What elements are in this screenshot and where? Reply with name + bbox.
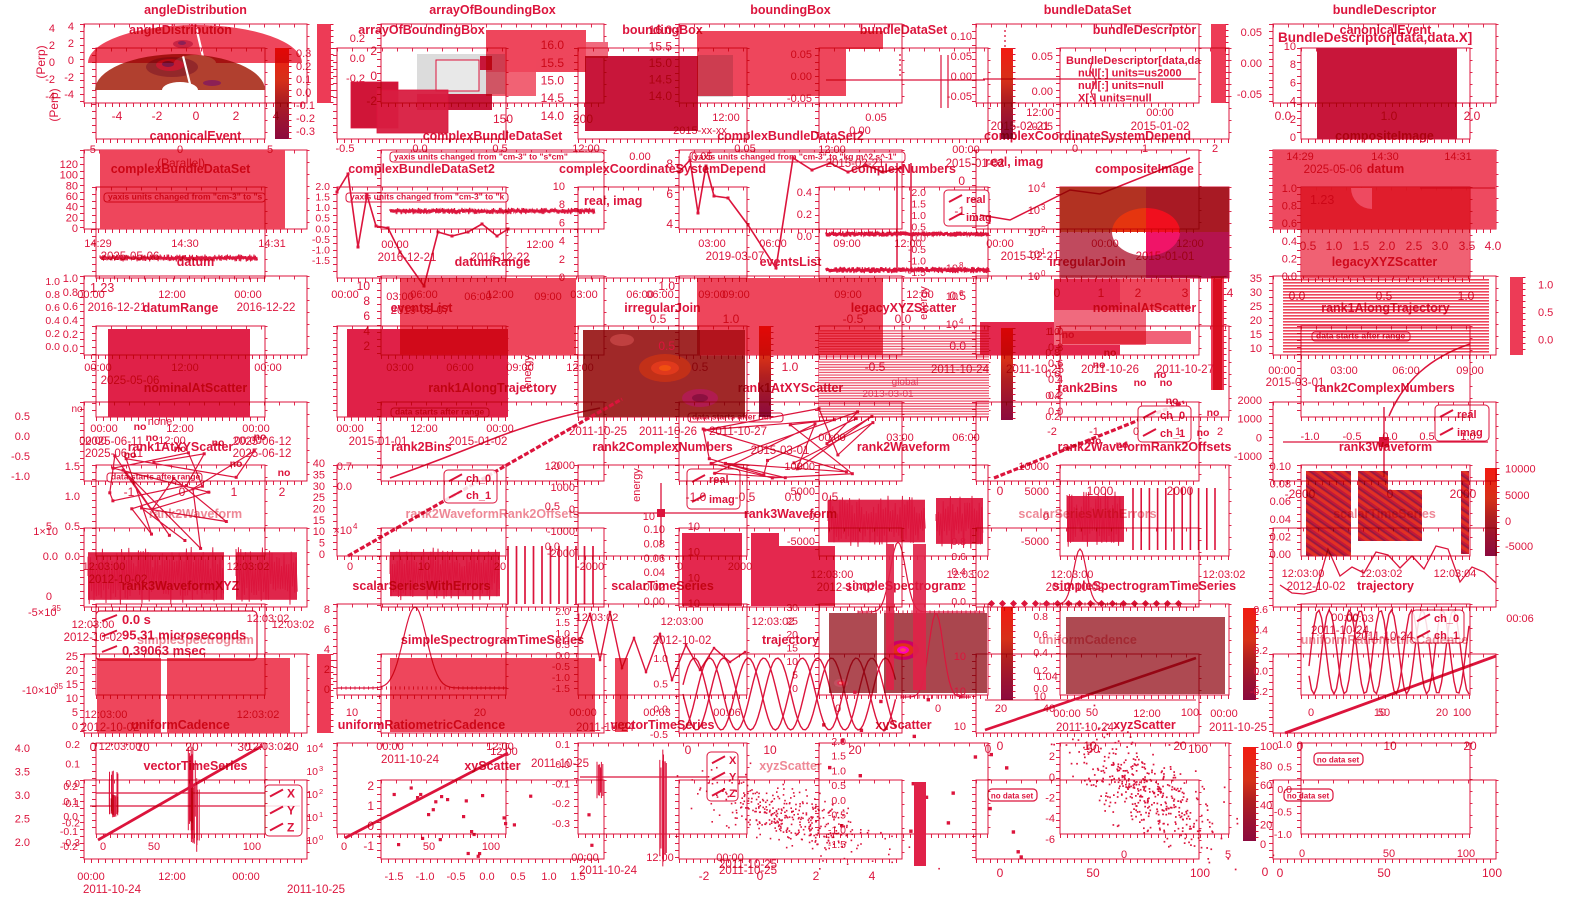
svg-text:1.0: 1.0 bbox=[65, 491, 80, 503]
svg-text:50: 50 bbox=[1383, 848, 1395, 860]
svg-text:12:03:02: 12:03:02 bbox=[752, 616, 795, 628]
svg-text:-10×10: -10×10 bbox=[22, 685, 57, 697]
svg-text:rank2ComplexNumbers: rank2ComplexNumbers bbox=[1314, 381, 1454, 395]
svg-text:no data set: no data set bbox=[1317, 756, 1360, 765]
svg-text:ch_1: ch_1 bbox=[1160, 428, 1185, 440]
svg-text:0.0: 0.0 bbox=[831, 795, 846, 807]
svg-text:real, imag: real, imag bbox=[584, 194, 642, 208]
svg-text:0: 0 bbox=[68, 55, 74, 67]
svg-text:2011-10-25: 2011-10-25 bbox=[287, 884, 345, 896]
svg-text:0.0: 0.0 bbox=[1253, 666, 1268, 678]
svg-text:100: 100 bbox=[1190, 866, 1210, 880]
svg-text:0.5: 0.5 bbox=[1277, 762, 1292, 774]
svg-text:-0.2: -0.2 bbox=[552, 798, 570, 810]
svg-text:0.5: 0.5 bbox=[65, 521, 80, 533]
svg-text:2011-10-27: 2011-10-27 bbox=[1156, 364, 1214, 376]
svg-text:-2: -2 bbox=[152, 109, 163, 123]
svg-text:-1.0: -1.0 bbox=[1274, 829, 1292, 841]
svg-text:0: 0 bbox=[179, 485, 186, 499]
svg-text:2011-10-24: 2011-10-24 bbox=[931, 364, 990, 376]
svg-text:12:00: 12:00 bbox=[166, 423, 194, 435]
svg-text:complexCoordinateSystemDepend: complexCoordinateSystemDepend bbox=[559, 162, 766, 176]
svg-text:1.5: 1.5 bbox=[65, 461, 80, 473]
svg-text:09:00: 09:00 bbox=[833, 238, 861, 250]
svg-text:30: 30 bbox=[237, 740, 251, 754]
svg-text:2025-05-06: 2025-05-06 bbox=[101, 251, 160, 263]
svg-text:2: 2 bbox=[49, 40, 55, 52]
svg-text:bundleDataSet: bundleDataSet bbox=[1044, 3, 1132, 17]
svg-text:compositeImage: compositeImage bbox=[1095, 162, 1194, 176]
svg-text:legacyXYZScatter: legacyXYZScatter bbox=[1332, 255, 1438, 269]
svg-text:0.0: 0.0 bbox=[63, 811, 78, 823]
svg-text:0: 0 bbox=[347, 561, 353, 573]
svg-text:(Perp): (Perp) bbox=[47, 88, 61, 121]
svg-text:×10: ×10 bbox=[333, 525, 352, 537]
svg-text:0.0: 0.0 bbox=[1033, 683, 1048, 695]
svg-text:00:00: 00:00 bbox=[336, 423, 364, 435]
svg-text:uniformCadence: uniformCadence bbox=[1038, 633, 1137, 647]
svg-text:-1.0: -1.0 bbox=[11, 471, 30, 483]
svg-text:2: 2 bbox=[1217, 426, 1223, 438]
svg-text:vectorTimeSeries: vectorTimeSeries bbox=[144, 759, 248, 773]
svg-text:0.0: 0.0 bbox=[1275, 109, 1292, 123]
svg-text:12:00: 12:00 bbox=[171, 362, 199, 374]
svg-text:1.5: 1.5 bbox=[1353, 239, 1370, 253]
svg-text:2011-10-24: 2011-10-24 bbox=[579, 865, 638, 877]
svg-text:2: 2 bbox=[1049, 751, 1055, 763]
svg-text:12:00: 12:00 bbox=[712, 112, 740, 124]
svg-text:rank2Bins: rank2Bins bbox=[1057, 381, 1117, 395]
svg-text:-0.3: -0.3 bbox=[552, 818, 570, 830]
svg-text:6: 6 bbox=[363, 309, 370, 323]
svg-text:-0.2: -0.2 bbox=[296, 113, 315, 125]
svg-text:0.5: 0.5 bbox=[911, 221, 926, 233]
svg-text:20: 20 bbox=[1250, 315, 1262, 327]
svg-text:4.0: 4.0 bbox=[1485, 239, 1502, 253]
svg-text:2: 2 bbox=[813, 869, 820, 883]
svg-text:-2000: -2000 bbox=[576, 561, 604, 573]
svg-text:25: 25 bbox=[66, 651, 78, 663]
svg-text:0.0: 0.0 bbox=[479, 871, 494, 883]
svg-text:X: X bbox=[287, 787, 295, 801]
svg-text:20: 20 bbox=[1463, 739, 1477, 753]
svg-text:6: 6 bbox=[1290, 77, 1296, 89]
svg-text:-1: -1 bbox=[954, 204, 965, 218]
svg-text:0.0: 0.0 bbox=[895, 312, 912, 326]
svg-text:20: 20 bbox=[848, 743, 862, 757]
svg-text:0.5: 0.5 bbox=[510, 871, 525, 883]
svg-text:compositeImage: compositeImage bbox=[1335, 129, 1434, 143]
svg-text:1000: 1000 bbox=[1238, 414, 1262, 426]
svg-text:0.0: 0.0 bbox=[951, 596, 966, 608]
svg-text:-0.1: -0.1 bbox=[296, 100, 315, 112]
svg-text:00:00: 00:00 bbox=[1210, 708, 1238, 720]
svg-text:-0.2: -0.2 bbox=[60, 841, 78, 853]
svg-text:2013-03-01: 2013-03-01 bbox=[862, 389, 914, 400]
svg-text:10: 10 bbox=[357, 279, 371, 293]
svg-text:2019-03-07: 2019-03-07 bbox=[706, 251, 765, 263]
svg-text:16.0: 16.0 bbox=[649, 23, 673, 37]
svg-text:2.5: 2.5 bbox=[15, 814, 30, 826]
svg-text:15: 15 bbox=[1250, 329, 1262, 341]
svg-text:0: 0 bbox=[985, 742, 992, 756]
svg-text:1.0: 1.0 bbox=[63, 273, 78, 285]
svg-text:0: 0 bbox=[757, 869, 764, 883]
svg-text:12:03:00: 12:03:00 bbox=[72, 619, 115, 631]
svg-text:8: 8 bbox=[1290, 59, 1296, 71]
svg-text:5: 5 bbox=[1225, 849, 1231, 861]
svg-text:50: 50 bbox=[1086, 707, 1098, 719]
svg-text:data starts after range: data starts after range bbox=[395, 407, 485, 417]
svg-text:-0.1: -0.1 bbox=[60, 826, 78, 838]
svg-text:scalarSeriesWithErrors: scalarSeriesWithErrors bbox=[1018, 507, 1156, 521]
svg-text:0.0: 0.0 bbox=[296, 87, 311, 99]
svg-text:20: 20 bbox=[66, 665, 78, 677]
svg-text:12:00: 12:00 bbox=[646, 852, 674, 864]
svg-text:14:31: 14:31 bbox=[258, 238, 286, 250]
svg-text:0.04: 0.04 bbox=[1270, 514, 1291, 526]
svg-text:imag: imag bbox=[709, 494, 735, 506]
svg-text:12:03:00: 12:03:00 bbox=[1282, 568, 1325, 580]
svg-text:15.0: 15.0 bbox=[649, 56, 673, 70]
svg-text:-1.5: -1.5 bbox=[828, 839, 846, 851]
svg-text:4: 4 bbox=[353, 522, 358, 531]
svg-text:10: 10 bbox=[1383, 739, 1397, 753]
svg-text:(Perp): (Perp) bbox=[34, 45, 48, 78]
svg-text:50: 50 bbox=[148, 841, 160, 853]
svg-text:0.02: 0.02 bbox=[644, 582, 665, 594]
svg-text:0.5: 0.5 bbox=[1300, 239, 1317, 253]
svg-text:trajectory: trajectory bbox=[1357, 579, 1414, 593]
svg-text:30: 30 bbox=[313, 481, 325, 493]
svg-text:0.5: 0.5 bbox=[1538, 307, 1553, 319]
svg-text:8: 8 bbox=[363, 294, 370, 308]
svg-text:rank2WaveformRank2Offsets: rank2WaveformRank2Offsets bbox=[406, 507, 580, 521]
svg-text:03:00: 03:00 bbox=[1330, 365, 1358, 377]
svg-text:150: 150 bbox=[493, 112, 513, 126]
svg-text:12:03:00: 12:03:00 bbox=[99, 741, 142, 753]
svg-text:2000: 2000 bbox=[1167, 484, 1194, 498]
svg-text:-0.5: -0.5 bbox=[1343, 431, 1362, 443]
svg-text:2: 2 bbox=[68, 38, 74, 50]
svg-text:trajectory: trajectory bbox=[762, 633, 819, 647]
svg-text:06:00: 06:00 bbox=[759, 238, 787, 250]
svg-text:4: 4 bbox=[68, 21, 74, 33]
svg-text:03:00: 03:00 bbox=[886, 432, 914, 444]
svg-text:0: 0 bbox=[1041, 269, 1046, 278]
svg-text:1.0: 1.0 bbox=[1381, 109, 1398, 123]
svg-text:10: 10 bbox=[763, 743, 777, 757]
svg-text:06:00: 06:00 bbox=[1392, 365, 1420, 377]
svg-text:50: 50 bbox=[1377, 866, 1391, 880]
svg-text:20: 20 bbox=[995, 703, 1007, 715]
svg-text:global: global bbox=[892, 377, 919, 388]
svg-text:0.5: 0.5 bbox=[831, 780, 846, 792]
svg-text:4: 4 bbox=[49, 23, 55, 35]
svg-text:canonicalEvent: canonicalEvent bbox=[150, 129, 243, 143]
svg-text:12:00: 12:00 bbox=[894, 238, 922, 250]
svg-text:0.4: 0.4 bbox=[1033, 647, 1048, 659]
svg-text:-1.5: -1.5 bbox=[312, 255, 330, 267]
svg-text:0.00: 0.00 bbox=[1241, 58, 1262, 70]
svg-text:100: 100 bbox=[1260, 741, 1278, 753]
svg-text:X: X bbox=[729, 755, 737, 767]
svg-text:0.0: 0.0 bbox=[785, 490, 802, 504]
svg-text:1.0: 1.0 bbox=[831, 765, 846, 777]
svg-text:-1.5: -1.5 bbox=[385, 871, 404, 883]
svg-text:scalarTimeSeries: scalarTimeSeries bbox=[1333, 507, 1436, 521]
svg-text:2.0: 2.0 bbox=[911, 187, 926, 199]
svg-text:Y: Y bbox=[287, 804, 295, 818]
svg-text:1.0: 1.0 bbox=[1326, 239, 1343, 253]
svg-text:10: 10 bbox=[1028, 183, 1040, 195]
svg-text:0: 0 bbox=[1256, 432, 1262, 444]
svg-text:-0.5: -0.5 bbox=[735, 490, 756, 504]
svg-text:1.0: 1.0 bbox=[653, 653, 668, 665]
svg-text:8: 8 bbox=[324, 604, 330, 616]
svg-text:12:03:00: 12:03:00 bbox=[661, 616, 704, 628]
svg-text:09:00: 09:00 bbox=[506, 362, 534, 374]
svg-text:8: 8 bbox=[666, 157, 673, 171]
svg-text:0: 0 bbox=[90, 740, 97, 754]
svg-text:0.2: 0.2 bbox=[350, 33, 365, 45]
svg-text:0.4: 0.4 bbox=[797, 187, 812, 199]
svg-text:0: 0 bbox=[341, 841, 347, 853]
svg-text:3.5: 3.5 bbox=[1459, 239, 1476, 253]
svg-text:00:00: 00:00 bbox=[234, 289, 262, 301]
svg-text:2: 2 bbox=[279, 485, 286, 499]
svg-text:10: 10 bbox=[346, 707, 358, 719]
svg-text:0: 0 bbox=[319, 549, 325, 561]
svg-text:00:00: 00:00 bbox=[1268, 365, 1296, 377]
svg-text:1.0: 1.0 bbox=[782, 360, 799, 374]
svg-text:10: 10 bbox=[313, 526, 325, 538]
svg-text:0.1: 0.1 bbox=[65, 759, 80, 771]
svg-text:1.0: 1.0 bbox=[45, 276, 60, 288]
svg-text:-4: -4 bbox=[64, 89, 74, 101]
svg-text:0.2: 0.2 bbox=[63, 781, 78, 793]
svg-text:0.5: 0.5 bbox=[658, 339, 675, 353]
svg-text:0.5: 0.5 bbox=[822, 490, 839, 504]
svg-text:yaxis units changed from "cm-3: yaxis units changed from "cm-3" to "k bbox=[350, 192, 505, 202]
svg-text:Z: Z bbox=[729, 788, 736, 800]
svg-text:1: 1 bbox=[319, 810, 323, 819]
svg-text:0.4: 0.4 bbox=[45, 315, 60, 327]
svg-text:0.00: 0.00 bbox=[951, 71, 972, 83]
svg-text:00:00: 00:00 bbox=[986, 238, 1014, 250]
svg-text:3.0: 3.0 bbox=[1432, 239, 1449, 253]
svg-text:10: 10 bbox=[553, 181, 565, 193]
svg-text:0.0: 0.0 bbox=[63, 343, 78, 355]
svg-text:datumRange: datumRange bbox=[143, 301, 219, 315]
svg-text:complexBundleDataSet2: complexBundleDataSet2 bbox=[717, 129, 864, 143]
svg-text:0.4: 0.4 bbox=[1282, 236, 1297, 248]
svg-text:10: 10 bbox=[306, 812, 318, 824]
svg-text:-1.0: -1.0 bbox=[416, 871, 435, 883]
svg-text:14.0: 14.0 bbox=[649, 89, 673, 103]
svg-text:00:00: 00:00 bbox=[376, 741, 404, 753]
svg-text:-2: -2 bbox=[699, 869, 710, 883]
svg-text:0.0: 0.0 bbox=[949, 339, 966, 353]
svg-text:2016-12-21: 2016-12-21 bbox=[88, 302, 147, 314]
svg-text:0.05: 0.05 bbox=[1032, 51, 1053, 63]
svg-text:no: no bbox=[1134, 377, 1147, 389]
svg-text:rank1AtXYScatter: rank1AtXYScatter bbox=[738, 381, 844, 395]
svg-text:100: 100 bbox=[1453, 707, 1471, 719]
svg-text:arrayOfBoundingBox: arrayOfBoundingBox bbox=[358, 23, 484, 37]
svg-text:Z: Z bbox=[287, 821, 294, 835]
svg-text:2011-10-24: 2011-10-24 bbox=[1056, 722, 1115, 734]
svg-text:0: 0 bbox=[1277, 866, 1284, 880]
svg-text:00:00: 00:00 bbox=[1146, 107, 1174, 119]
svg-text:4: 4 bbox=[363, 324, 370, 338]
svg-text:2000: 2000 bbox=[1238, 395, 1262, 407]
svg-text:14.0: 14.0 bbox=[541, 109, 565, 123]
svg-text:0.4: 0.4 bbox=[1253, 625, 1268, 637]
svg-text:4: 4 bbox=[559, 236, 565, 248]
svg-text:2011-10-26: 2011-10-26 bbox=[639, 426, 697, 438]
svg-text:-0.5: -0.5 bbox=[865, 360, 886, 374]
svg-text:0.06: 0.06 bbox=[644, 553, 665, 565]
svg-text:0: 0 bbox=[1297, 739, 1304, 753]
svg-text:15.5: 15.5 bbox=[649, 40, 673, 54]
svg-text:40: 40 bbox=[285, 740, 299, 754]
svg-text:60: 60 bbox=[1260, 780, 1272, 792]
svg-text:ch_0: ch_0 bbox=[466, 473, 491, 485]
svg-text:null[:] units=us2000: null[:] units=us2000 bbox=[1078, 68, 1182, 80]
svg-text:10: 10 bbox=[946, 263, 958, 275]
svg-text:yaxis units changed from "cm-3: yaxis units changed from "cm-3" to "s*cm… bbox=[394, 152, 568, 162]
svg-text:0.5: 0.5 bbox=[692, 360, 709, 374]
svg-text:0.05: 0.05 bbox=[951, 51, 972, 63]
svg-text:1.5: 1.5 bbox=[831, 751, 846, 763]
svg-text:0: 0 bbox=[46, 591, 52, 603]
svg-text:no: no bbox=[134, 421, 147, 433]
svg-text:2: 2 bbox=[370, 44, 377, 58]
svg-text:0.05: 0.05 bbox=[865, 112, 886, 124]
svg-text:rank2Waveform: rank2Waveform bbox=[149, 507, 242, 521]
svg-text:2011-10-25: 2011-10-25 bbox=[719, 859, 777, 871]
svg-text:0.0: 0.0 bbox=[15, 431, 30, 443]
svg-text:10: 10 bbox=[306, 789, 318, 801]
svg-text:20: 20 bbox=[185, 740, 199, 754]
svg-text:2.0: 2.0 bbox=[831, 736, 846, 748]
svg-text:0.8: 0.8 bbox=[63, 287, 78, 299]
svg-text:2012-10-02: 2012-10-02 bbox=[64, 632, 123, 644]
svg-text:0.6: 0.6 bbox=[63, 301, 78, 313]
svg-text:00:00: 00:00 bbox=[331, 289, 359, 301]
svg-text:10: 10 bbox=[954, 686, 966, 698]
svg-text:0: 0 bbox=[685, 743, 692, 757]
svg-text:10000: 10000 bbox=[1505, 463, 1536, 475]
svg-text:-0.3: -0.3 bbox=[296, 126, 315, 138]
svg-text:80: 80 bbox=[1260, 761, 1272, 773]
svg-text:10: 10 bbox=[306, 766, 318, 778]
svg-text:10: 10 bbox=[946, 291, 958, 303]
svg-text:6: 6 bbox=[324, 624, 330, 636]
svg-text:2: 2 bbox=[367, 779, 374, 793]
svg-text:0.5: 0.5 bbox=[650, 312, 667, 326]
svg-text:0.4: 0.4 bbox=[63, 315, 78, 327]
svg-text:1: 1 bbox=[367, 799, 374, 813]
svg-text:datumRange: datumRange bbox=[455, 255, 531, 269]
svg-text:-0.05: -0.05 bbox=[1237, 89, 1262, 101]
svg-text:12:00: 12:00 bbox=[526, 239, 554, 251]
svg-text:0: 0 bbox=[997, 739, 1004, 753]
svg-text:10: 10 bbox=[1028, 271, 1040, 283]
svg-text:0.2: 0.2 bbox=[63, 329, 78, 341]
svg-text:50: 50 bbox=[423, 841, 435, 853]
svg-text:0: 0 bbox=[1260, 839, 1266, 851]
svg-text:15.0: 15.0 bbox=[541, 74, 565, 88]
svg-text:-4: -4 bbox=[1045, 813, 1055, 825]
svg-text:0.6: 0.6 bbox=[1253, 604, 1268, 616]
svg-text:00:00: 00:00 bbox=[1331, 612, 1359, 624]
svg-text:5000: 5000 bbox=[1025, 486, 1049, 498]
svg-text:35: 35 bbox=[313, 469, 325, 481]
svg-text:35: 35 bbox=[52, 604, 61, 613]
svg-text:12:03:02: 12:03:02 bbox=[247, 741, 290, 753]
svg-text:simpleSpectrogramTimeSeries: simpleSpectrogramTimeSeries bbox=[401, 633, 584, 647]
svg-text:0.6: 0.6 bbox=[45, 302, 60, 314]
svg-text:00:00: 00:00 bbox=[381, 239, 409, 251]
svg-text:0: 0 bbox=[193, 109, 200, 123]
svg-text:ch_0: ch_0 bbox=[1160, 410, 1185, 422]
svg-text:complexBundleDataSet: complexBundleDataSet bbox=[423, 129, 563, 143]
svg-text:-0.05: -0.05 bbox=[947, 91, 972, 103]
svg-text:10: 10 bbox=[1083, 739, 1097, 753]
svg-text:0.0: 0.0 bbox=[350, 53, 365, 65]
svg-text:12:03:02: 12:03:02 bbox=[1203, 569, 1246, 581]
svg-text:10: 10 bbox=[688, 521, 700, 533]
svg-text:2016-12-21: 2016-12-21 bbox=[378, 252, 437, 264]
svg-text:100: 100 bbox=[243, 841, 261, 853]
svg-text:03:00: 03:00 bbox=[386, 362, 414, 374]
svg-text:eventsList: eventsList bbox=[760, 255, 823, 269]
svg-text:12:00: 12:00 bbox=[1026, 107, 1054, 119]
svg-text:12:00: 12:00 bbox=[566, 362, 594, 374]
svg-text:2015-01-02: 2015-01-02 bbox=[449, 436, 508, 448]
svg-text:50: 50 bbox=[1086, 866, 1100, 880]
svg-text:BundleDescriptor[data,da: BundleDescriptor[data,da bbox=[1066, 55, 1201, 67]
svg-text:4: 4 bbox=[1041, 181, 1046, 190]
svg-text:00:00: 00:00 bbox=[77, 871, 105, 883]
svg-text:100: 100 bbox=[1188, 742, 1208, 756]
svg-text:no: no bbox=[278, 467, 291, 479]
svg-text:00:06: 00:06 bbox=[1506, 613, 1534, 625]
svg-text:50: 50 bbox=[1378, 707, 1390, 719]
svg-text:00:00: 00:00 bbox=[84, 362, 112, 374]
svg-text:0.7: 0.7 bbox=[337, 461, 352, 473]
svg-text:0.2: 0.2 bbox=[1253, 645, 1268, 657]
svg-text:simpleSpectrogram: simpleSpectrogram bbox=[137, 633, 254, 647]
svg-text:2.0: 2.0 bbox=[1464, 109, 1481, 123]
svg-text:0.0: 0.0 bbox=[65, 551, 80, 563]
svg-text:0: 0 bbox=[1290, 132, 1296, 144]
svg-text:10: 10 bbox=[66, 693, 78, 705]
svg-text:0.0: 0.0 bbox=[45, 341, 60, 353]
svg-text:0.0: 0.0 bbox=[545, 541, 560, 553]
svg-text:100: 100 bbox=[1181, 707, 1199, 719]
svg-text:1.0: 1.0 bbox=[911, 210, 926, 222]
svg-text:ch_0: ch_0 bbox=[1434, 613, 1459, 625]
svg-text:0.0: 0.0 bbox=[43, 551, 58, 563]
svg-text:-1.0: -1.0 bbox=[1301, 431, 1320, 443]
svg-text:ch_1: ch_1 bbox=[466, 490, 491, 502]
svg-text:0.8: 0.8 bbox=[1033, 611, 1048, 623]
svg-text:00:00: 00:00 bbox=[1091, 238, 1119, 250]
svg-text:0: 0 bbox=[1262, 865, 1269, 879]
